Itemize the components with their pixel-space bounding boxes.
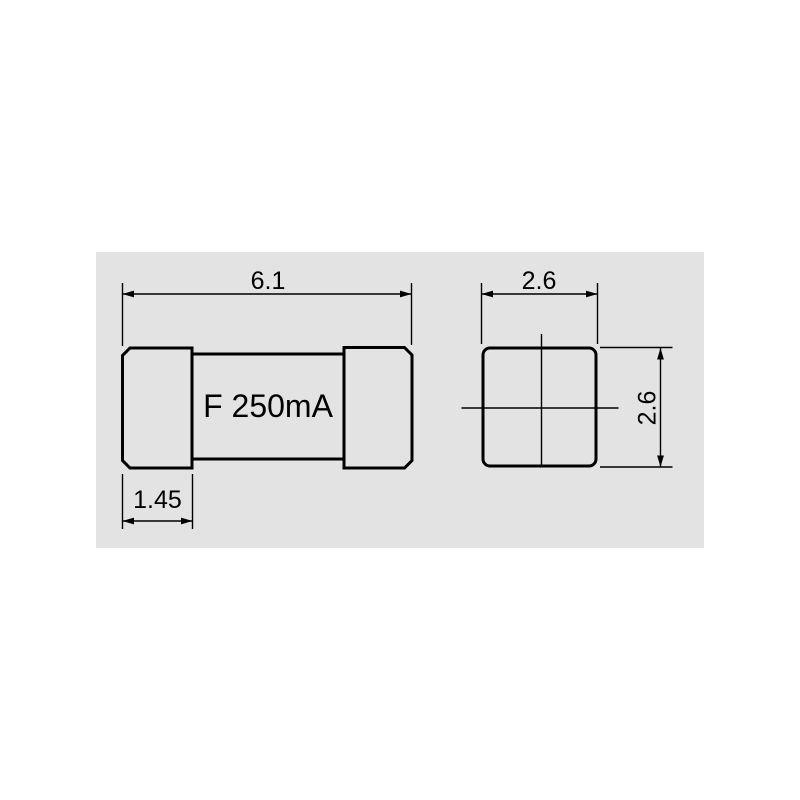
fuse-marking-label: F 250mA [203, 388, 333, 424]
overall-length-value: 6.1 [251, 267, 286, 295]
end-height-value: 2.6 [634, 391, 662, 426]
fuse-dimension-drawing: F 250mA 6.1 1.45 [0, 0, 800, 800]
cap-length-value: 1.45 [133, 486, 182, 514]
page: F 250mA 6.1 1.45 [0, 0, 800, 800]
end-width-value: 2.6 [522, 267, 557, 295]
